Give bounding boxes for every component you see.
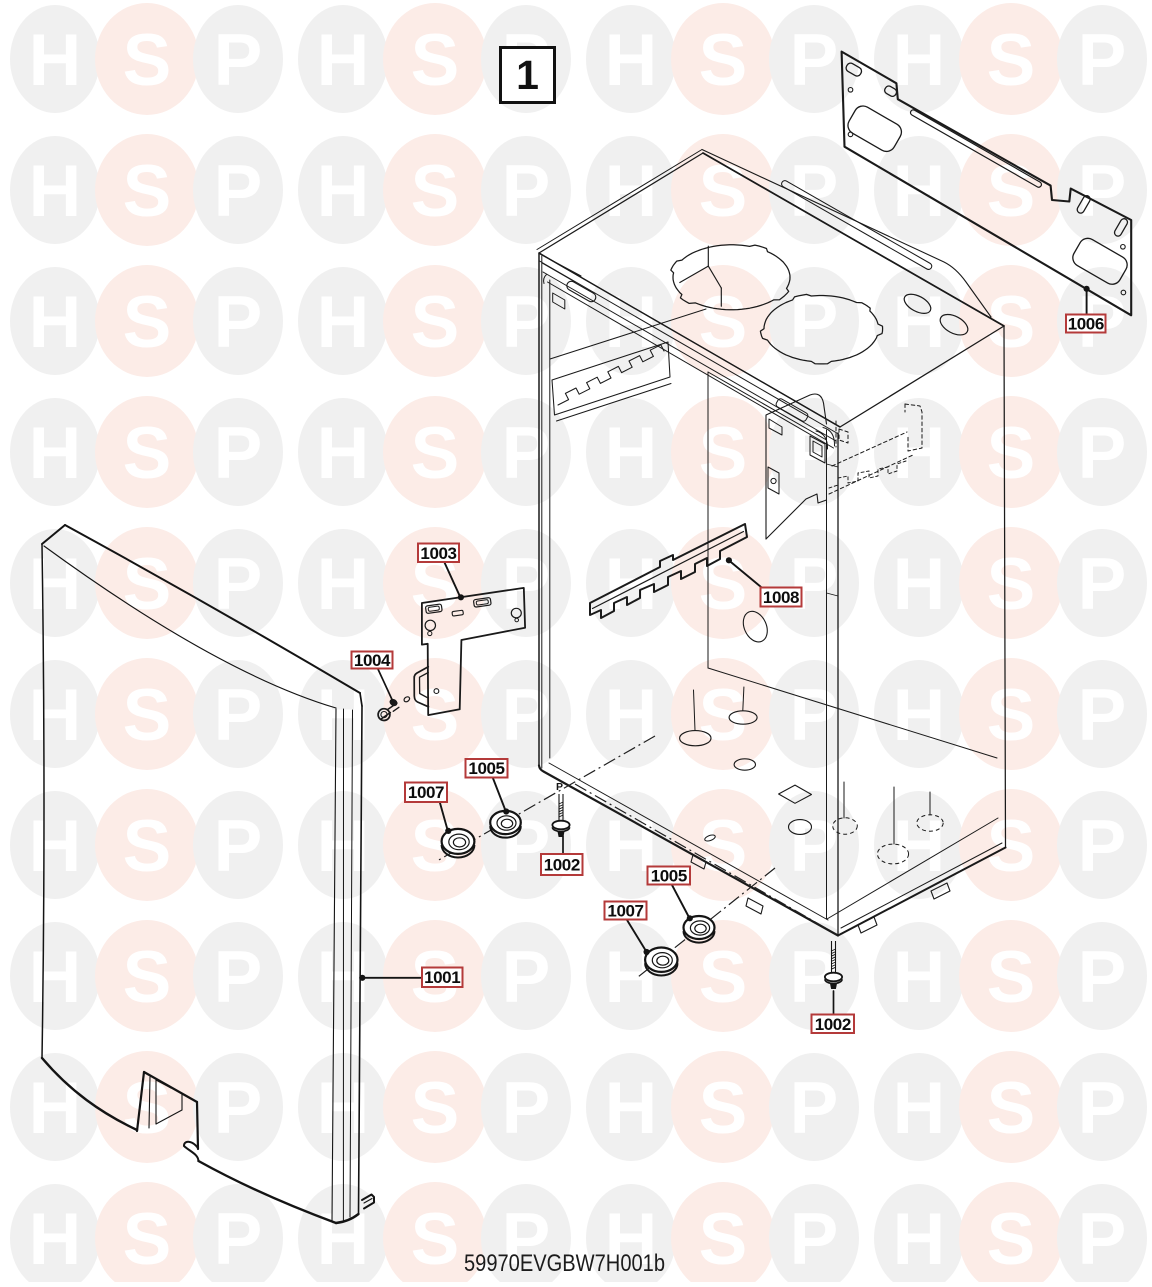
svg-text:P: P [1078,413,1127,494]
svg-text:H: H [29,544,82,625]
svg-text:P: P [214,282,263,363]
svg-text:S: S [411,675,460,756]
svg-text:H: H [893,20,946,101]
svg-text:P: P [214,1199,263,1280]
svg-text:1: 1 [516,52,539,98]
svg-text:S: S [123,806,172,887]
svg-text:H: H [29,937,82,1018]
svg-text:H: H [605,151,658,232]
svg-text:S: S [987,20,1036,101]
svg-text:P: P [1078,1068,1127,1149]
svg-text:H: H [29,1068,82,1149]
svg-text:P: P [1078,1199,1127,1280]
svg-text:H: H [893,413,946,494]
svg-text:H: H [29,675,82,756]
svg-text:H: H [317,20,370,101]
svg-text:1007: 1007 [607,902,643,921]
svg-text:H: H [605,1068,658,1149]
svg-text:H: H [29,1199,82,1280]
svg-text:P: P [214,413,263,494]
svg-text:P: P [790,151,839,232]
svg-text:P: P [214,20,263,101]
svg-text:H: H [893,675,946,756]
svg-text:P: P [790,1068,839,1149]
svg-text:P: P [790,544,839,625]
svg-text:P: P [556,781,563,793]
svg-text:S: S [123,937,172,1018]
svg-text:P: P [502,413,551,494]
svg-text:P: P [790,20,839,101]
svg-text:S: S [411,1068,460,1149]
svg-text:S: S [699,151,748,232]
svg-text:H: H [893,544,946,625]
svg-text:H: H [893,937,946,1018]
svg-text:H: H [893,806,946,887]
svg-text:S: S [699,1068,748,1149]
svg-text:P: P [1078,806,1127,887]
svg-text:S: S [987,806,1036,887]
svg-text:H: H [893,1199,946,1280]
svg-text:1004: 1004 [354,651,391,670]
svg-text:S: S [123,151,172,232]
svg-text:H: H [605,937,658,1018]
svg-text:P: P [502,1068,551,1149]
svg-text:P: P [1078,544,1127,625]
svg-text:H: H [29,151,82,232]
svg-text:S: S [411,20,460,101]
svg-text:P: P [1078,20,1127,101]
svg-text:S: S [987,282,1036,363]
svg-text:1007: 1007 [408,783,444,802]
svg-text:S: S [699,937,748,1018]
svg-text:S: S [699,413,748,494]
svg-text:P: P [790,282,839,363]
svg-text:S: S [123,413,172,494]
svg-text:S: S [699,806,748,887]
svg-text:H: H [29,806,82,887]
svg-text:H: H [605,413,658,494]
svg-text:S: S [123,675,172,756]
svg-text:S: S [411,282,460,363]
svg-text:H: H [29,413,82,494]
svg-text:S: S [123,544,172,625]
svg-text:P: P [790,806,839,887]
svg-text:H: H [605,675,658,756]
svg-text:S: S [123,20,172,101]
svg-text:H: H [605,20,658,101]
svg-text:S: S [411,1199,460,1280]
svg-text:H: H [317,544,370,625]
svg-text:P: P [502,937,551,1018]
svg-text:P: P [502,544,551,625]
svg-text:H: H [317,413,370,494]
svg-text:H: H [317,151,370,232]
svg-text:P: P [1078,675,1127,756]
svg-text:S: S [987,413,1036,494]
svg-text:S: S [699,282,748,363]
svg-text:1008: 1008 [763,588,799,607]
svg-text:S: S [987,1068,1036,1149]
svg-text:S: S [123,282,172,363]
svg-text:P: P [214,675,263,756]
svg-text:59970EVGBW7H001b: 59970EVGBW7H001b [464,1250,665,1277]
svg-text:P: P [790,413,839,494]
svg-text:S: S [699,20,748,101]
svg-text:P: P [502,675,551,756]
svg-text:S: S [699,1199,748,1280]
svg-text:S: S [699,544,748,625]
svg-text:P: P [790,1199,839,1280]
svg-text:S: S [987,937,1036,1018]
svg-text:P: P [502,151,551,232]
svg-text:1005: 1005 [468,759,504,778]
svg-text:1002: 1002 [544,856,580,875]
svg-text:P: P [1078,937,1127,1018]
svg-text:S: S [411,151,460,232]
svg-text:H: H [29,282,82,363]
svg-text:P: P [1078,151,1127,232]
svg-text:S: S [987,544,1036,625]
svg-text:P: P [214,806,263,887]
svg-text:H: H [893,1068,946,1149]
svg-text:P: P [214,1068,263,1149]
svg-text:P: P [502,282,551,363]
svg-text:1002: 1002 [815,1015,851,1034]
svg-text:S: S [987,675,1036,756]
svg-text:P: P [214,937,263,1018]
svg-text:1001: 1001 [424,968,460,987]
svg-text:S: S [123,1068,172,1149]
svg-text:H: H [317,282,370,363]
svg-text:P: P [214,151,263,232]
svg-text:1006: 1006 [1068,315,1104,334]
svg-text:S: S [987,1199,1036,1280]
svg-text:P: P [790,675,839,756]
svg-text:S: S [411,413,460,494]
svg-text:1003: 1003 [420,544,456,563]
svg-text:H: H [893,282,946,363]
svg-text:S: S [123,1199,172,1280]
svg-text:H: H [29,20,82,101]
svg-text:1005: 1005 [651,867,687,886]
